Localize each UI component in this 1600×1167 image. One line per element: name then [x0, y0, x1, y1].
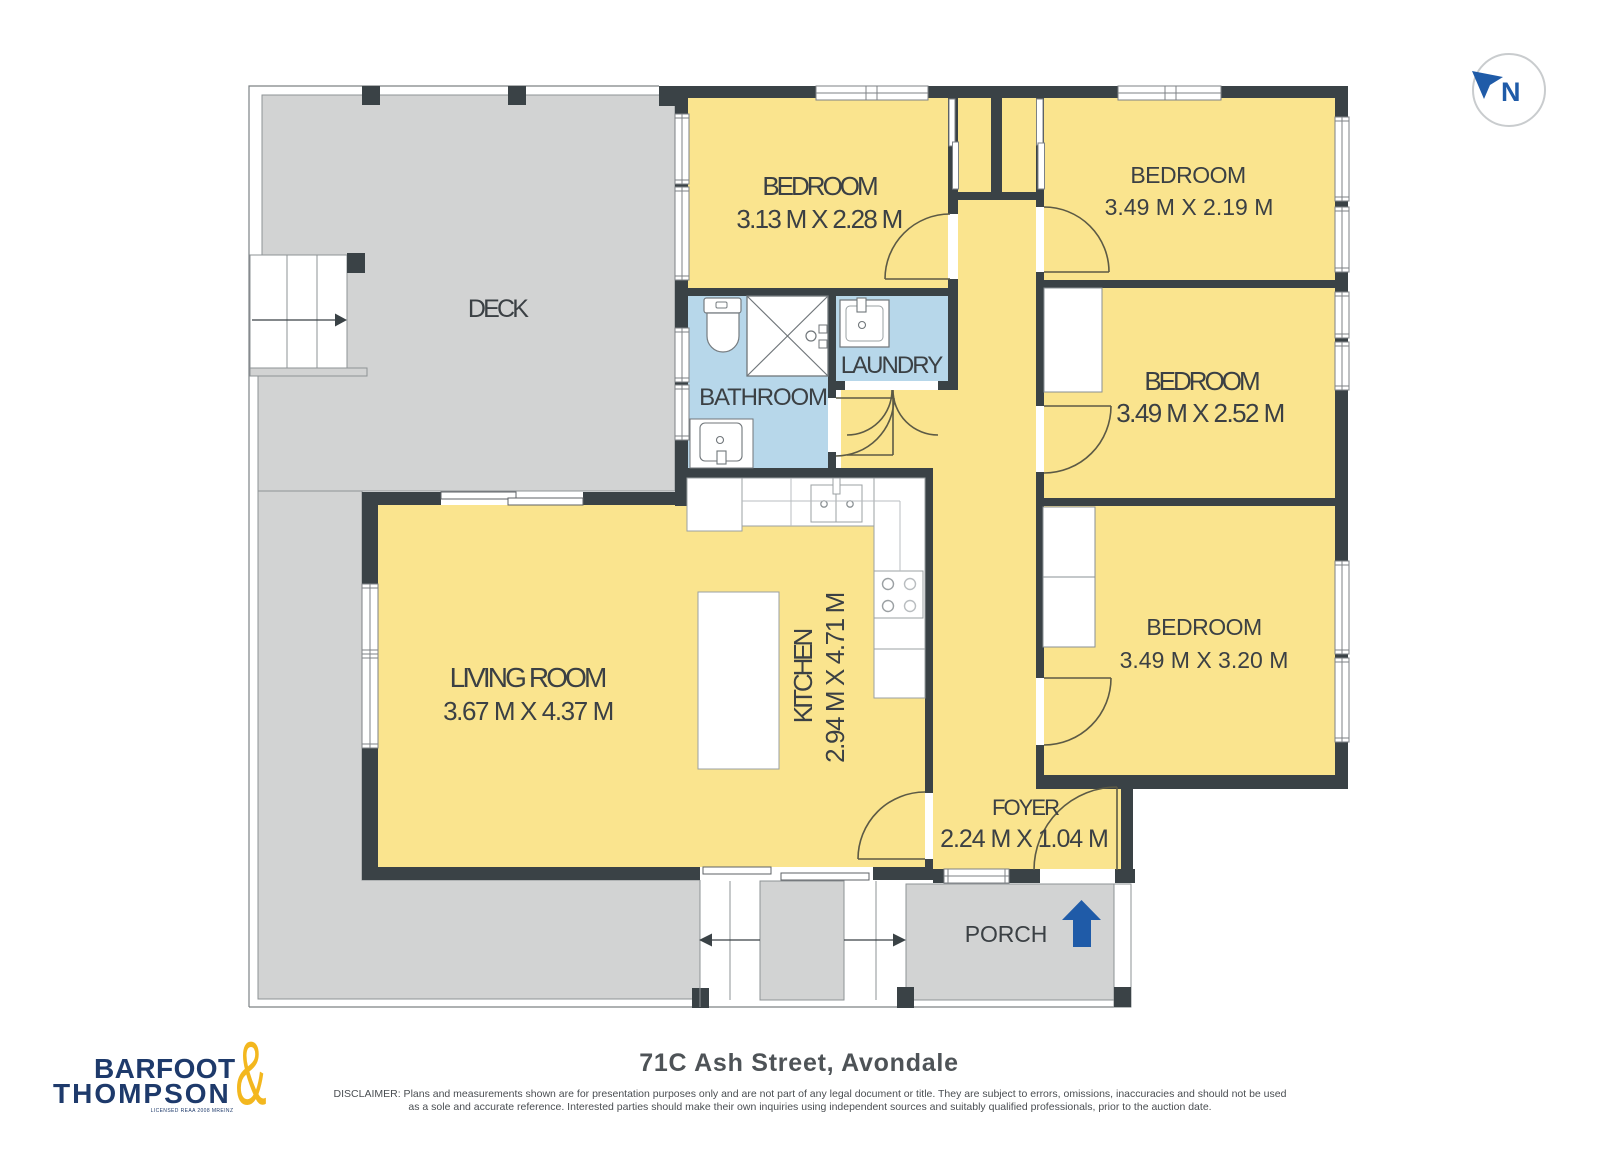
svg-text:LAUNDRY: LAUNDRY	[841, 352, 944, 379]
svg-text:DISCLAIMER: Plans and measurem: DISCLAIMER: Plans and measurements shown…	[334, 1088, 1287, 1100]
svg-text:71C Ash Street, Avondale: 71C Ash Street, Avondale	[639, 1049, 958, 1077]
svg-text:BEDROOM: BEDROOM	[1130, 162, 1245, 188]
svg-text:PORCH: PORCH	[965, 921, 1048, 947]
svg-text:BEDROOM: BEDROOM	[1146, 614, 1261, 640]
svg-text:&: &	[235, 1024, 266, 1124]
svg-text:LIVING ROOM: LIVING ROOM	[450, 662, 606, 693]
svg-text:N: N	[1501, 77, 1521, 107]
svg-text:3.49 M X 2.52 M: 3.49 M X 2.52 M	[1116, 398, 1284, 428]
svg-text:KITCHEN: KITCHEN	[788, 629, 818, 723]
svg-text:BEDROOM: BEDROOM	[1144, 366, 1259, 396]
svg-text:BATHROOM: BATHROOM	[699, 384, 827, 411]
svg-text:BEDROOM: BEDROOM	[762, 171, 877, 201]
svg-text:as a sole and accurate referen: as a sole and accurate reference. Intere…	[408, 1101, 1211, 1113]
svg-text:LICENSED REAA 2008 MREINZ: LICENSED REAA 2008 MREINZ	[151, 1108, 234, 1114]
svg-text:3.13 M X 2.28 M: 3.13 M X 2.28 M	[736, 204, 901, 234]
svg-text:3.67 M X 4.37 M: 3.67 M X 4.37 M	[443, 696, 613, 726]
svg-text:3.49 M X 3.20 M: 3.49 M X 3.20 M	[1120, 647, 1289, 673]
svg-text:THOMPSON: THOMPSON	[53, 1078, 231, 1109]
svg-text:2.24 M X 1.04 M: 2.24 M X 1.04 M	[940, 825, 1108, 853]
svg-text:2.94 M X 4.71 M: 2.94 M X 4.71 M	[820, 593, 850, 763]
svg-text:DECK: DECK	[468, 295, 529, 323]
svg-text:FOYER: FOYER	[992, 795, 1059, 820]
svg-text:3.49 M X 2.19 M: 3.49 M X 2.19 M	[1105, 194, 1274, 220]
